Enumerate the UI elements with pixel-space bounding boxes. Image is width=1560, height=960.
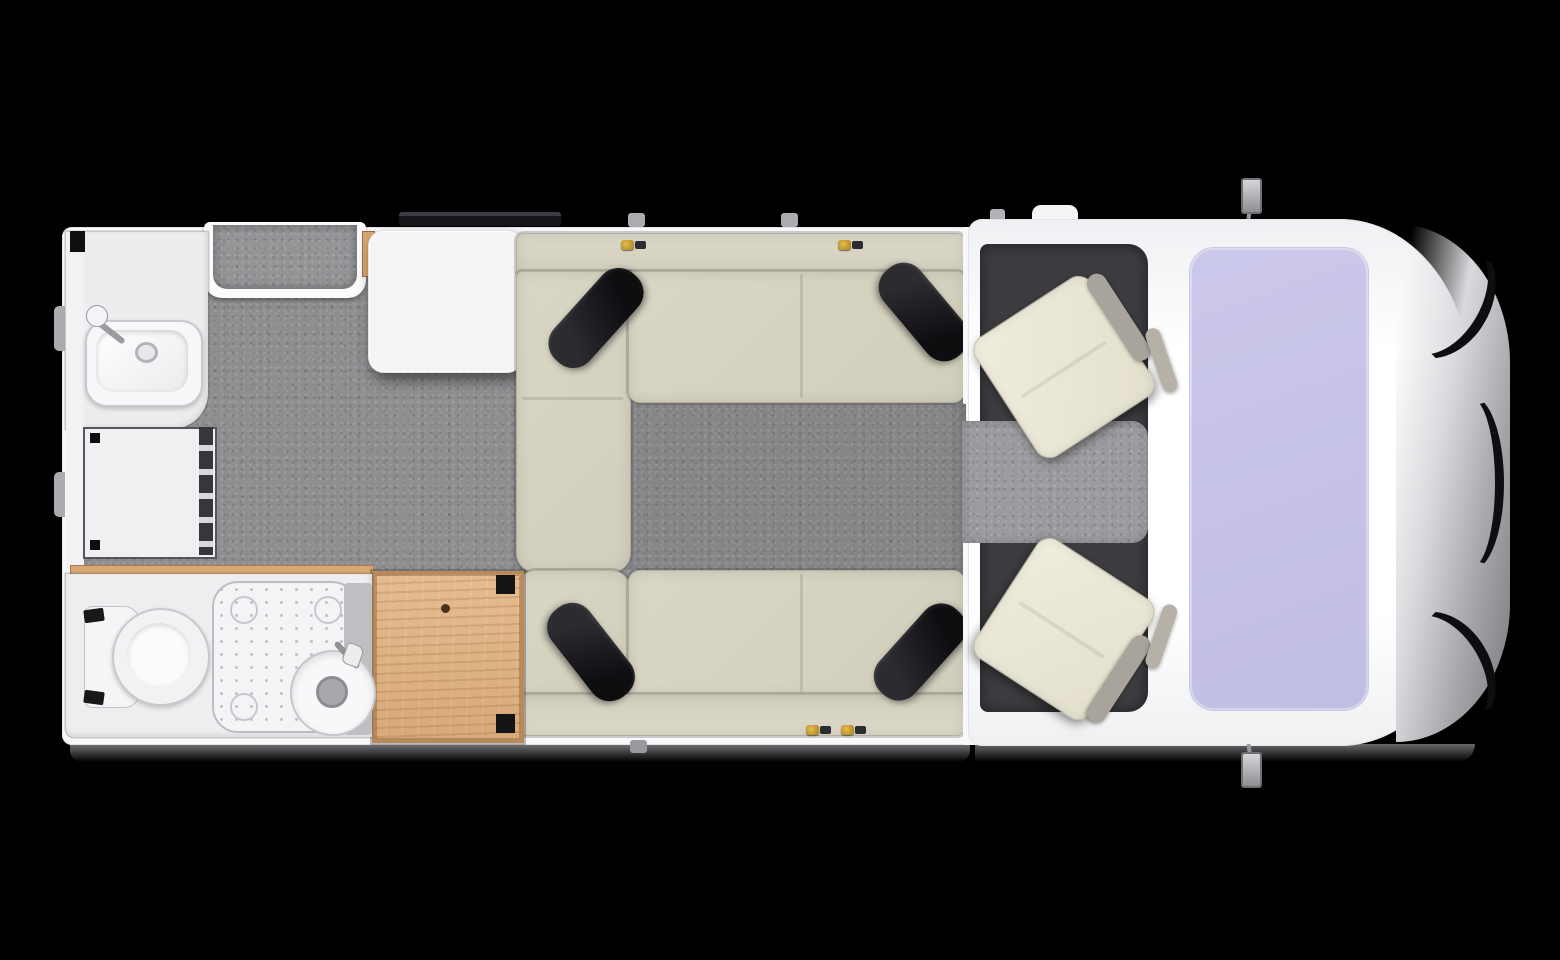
rear-wall-ledge (66, 232, 84, 568)
storage-cabinet (83, 427, 217, 559)
shower-drain-ring-tr (314, 596, 342, 624)
ground-shadow-cab (975, 744, 1475, 762)
bottom-wall-tab (630, 740, 647, 753)
roof-tab-1 (628, 213, 645, 227)
seatbelt-anchor-4 (841, 725, 854, 735)
seatbelt-latch-3 (820, 726, 831, 734)
basin-drain (135, 342, 158, 363)
side-mirror-bottom (1241, 752, 1262, 788)
faucet-knob (86, 305, 108, 327)
bottom-seat-seam (800, 574, 803, 692)
toilet-hinge-bottom (83, 690, 105, 706)
seatbelt-anchor-3 (806, 725, 819, 735)
seat-seam (1021, 340, 1108, 398)
cabinet-corner-bl (90, 540, 100, 550)
corner-marker (70, 231, 85, 252)
window-top-wall (399, 212, 561, 226)
wardrobe-knob (441, 604, 450, 613)
cabinet-hinge-strip (199, 427, 213, 555)
toilet-bowl-inner (127, 623, 191, 687)
seatbelt-latch-4 (855, 726, 866, 734)
seatbelt-latch-1 (635, 241, 646, 249)
wall-tab-upper (54, 306, 65, 351)
seat-seam (1018, 601, 1105, 659)
bumper-trim-mid (1440, 396, 1504, 570)
side-mirror-top (1241, 178, 1262, 214)
entry-step-recess (213, 225, 357, 289)
seatbelt-latch-2 (852, 241, 863, 249)
shower-drain-ring-bl (230, 693, 258, 721)
roof-tab-2 (781, 213, 798, 227)
wall-tab-lower (54, 472, 65, 517)
cabinet-corner-tl (90, 433, 100, 443)
toilet-hinge-top (83, 608, 105, 624)
shower-drain-ring-tl (230, 596, 258, 624)
seatbelt-anchor-2 (838, 240, 851, 250)
table (368, 230, 523, 373)
top-chaise-seam (522, 397, 623, 400)
floorplan-stage: Top-down floor plan of a semi-integrated… (0, 0, 1560, 960)
top-seat-seam (800, 274, 803, 398)
ground-shadow-rear (70, 744, 970, 762)
windscreen (1190, 248, 1368, 710)
wardrobe-notch-top (496, 575, 515, 594)
wardrobe-notch-bottom (496, 714, 515, 733)
seatbelt-anchor-1 (621, 240, 634, 250)
round-basin-drain (316, 676, 348, 708)
